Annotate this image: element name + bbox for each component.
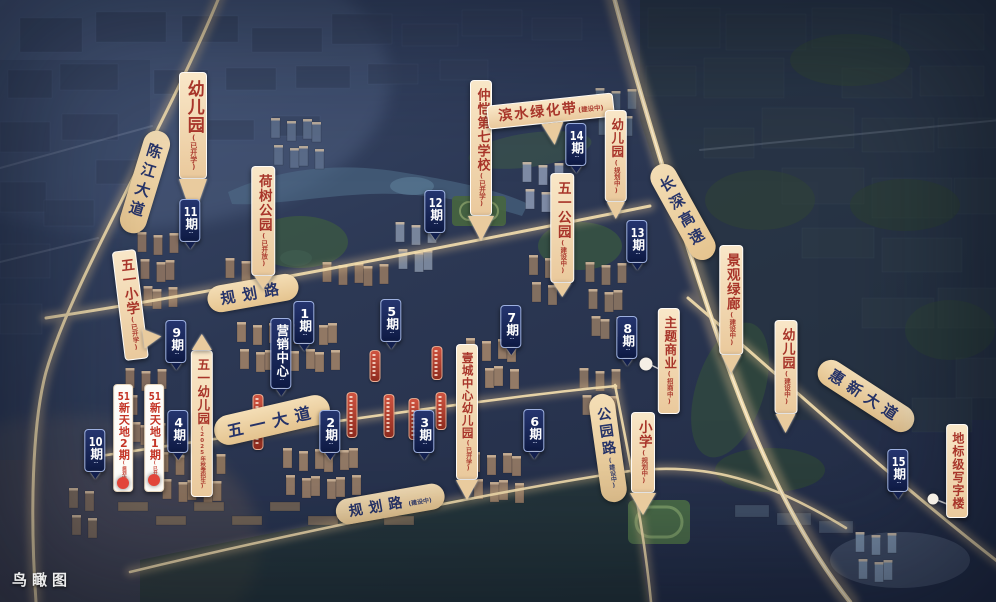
phase-8-label: 8期	[620, 322, 635, 348]
phase-1-pointer	[299, 344, 309, 351]
heshu-park: 荷树公园(已开放)	[251, 166, 275, 289]
primary-school-se-label: 小学	[636, 420, 652, 449]
dot-51-xintiandi-1	[148, 474, 160, 486]
sales-center: 营销中心⋯	[270, 318, 291, 396]
wuyi-kindergarten-label: 五一幼儿园	[195, 358, 210, 426]
yicheng-center-kindergarten-pointer	[456, 480, 478, 500]
phase-15: 15期⋯	[887, 449, 908, 499]
phase-2-status: ⋯	[328, 442, 333, 447]
phase-6-status: ⋯	[532, 441, 537, 446]
heshu-park-status: (已开放)	[260, 232, 268, 268]
masterplan-aerial-map: 幼儿园(已开学)荷树公园(已开放)仲恺第七学校(已开学)滨水绿化带(建设中)幼儿…	[0, 0, 1000, 602]
phase-2: 2期⋯	[319, 410, 340, 460]
landscape-corridor: 景观绿廊(建设中)	[719, 245, 743, 373]
phase-4: 4期⋯	[167, 410, 188, 460]
phase-12-pointer	[430, 233, 440, 240]
primary-school-se-status: (规划中)	[640, 449, 648, 485]
phase-9: 9期⋯	[165, 320, 186, 370]
wuyi-primary-school-status: (已开学)	[128, 315, 140, 351]
wuyi-park: 五一公园(建设中)	[550, 173, 574, 297]
wuyi-kindergarten: 五一幼儿园(2025年秋季招生)	[191, 334, 213, 497]
primary-school-se-pointer	[630, 493, 656, 515]
waterfront-greenbelt-label: 滨水绿化带	[498, 100, 579, 124]
road-guihua-south-status: (建设中)	[408, 497, 432, 508]
phase-9-label: 9期	[169, 326, 184, 352]
phase-10-status: ⋯	[93, 461, 98, 466]
kindergarten-n-pointer	[607, 202, 625, 219]
phase-13: 13期⋯	[626, 220, 647, 270]
zhongkai-no7-school-status: (已开学)	[477, 172, 485, 208]
kindergarten-n-status: (规划中)	[612, 159, 620, 195]
yicheng-center-kindergarten-status: (已开学)	[465, 440, 472, 472]
waterfront-greenbelt-pointer	[541, 122, 565, 146]
phase-7-status: ⋯	[509, 337, 514, 342]
phase-4-label: 4期	[171, 416, 186, 442]
phase-3: 3期⋯	[413, 410, 434, 460]
phase-10: 10期⋯	[84, 429, 105, 479]
kindergarten-e: 幼儿园(建设中)	[775, 320, 798, 433]
zhongkai-no7-school-pointer	[468, 216, 494, 241]
phase-12-label: 12期	[428, 196, 443, 222]
theme-commerce-label: 主题商业	[662, 316, 677, 370]
theme-commerce-status: (招商中)	[665, 370, 673, 406]
phase-2-pointer	[325, 453, 335, 460]
phase-5-status: ⋯	[389, 331, 394, 336]
wuyi-park-pointer	[553, 283, 571, 297]
yicheng-center-kindergarten: 壹城中心幼儿园(已开学)	[456, 344, 478, 500]
phase-13-status: ⋯	[635, 252, 640, 257]
heshu-park-label: 荷树公园	[256, 174, 272, 232]
wuyi-primary-school-label: 五一小学	[117, 257, 140, 317]
phase-14: 14期⋯	[565, 123, 586, 173]
phase-7: 7期⋯	[500, 305, 521, 355]
street-banner	[384, 394, 395, 438]
zhongkai-no7-school: 仲恺第七学校(已开学)	[468, 80, 494, 241]
phase-8-pointer	[622, 359, 632, 366]
phase-8-status: ⋯	[625, 348, 630, 353]
view-title: 鸟瞰图	[12, 569, 72, 590]
phase-15-status: ⋯	[896, 481, 901, 486]
phase-3-label: 3期	[417, 416, 432, 442]
phase-10-label: 10期	[88, 435, 103, 461]
phase-4-status: ⋯	[176, 442, 181, 447]
phase-12-status: ⋯	[433, 222, 438, 227]
street-banner	[347, 392, 358, 438]
phase-5-label: 5期	[384, 305, 399, 331]
heshu-park-pointer	[254, 276, 272, 289]
landscape-corridor-status: (建设中)	[728, 311, 736, 347]
phase-4-pointer	[173, 453, 183, 460]
phase-14-pointer	[571, 166, 581, 173]
phase-3-status: ⋯	[422, 442, 427, 447]
kindergarten-nw: 幼儿园(已开学)	[179, 72, 207, 219]
phase-9-status: ⋯	[174, 352, 179, 357]
phase-1: 1期⋯	[293, 301, 314, 351]
map-base-art	[0, 0, 1000, 602]
dot-landmark-office	[928, 494, 939, 505]
landmark-office-tower: 地标级写字楼	[946, 424, 968, 518]
wuyi-primary-school-pointer	[142, 326, 162, 348]
phase-3-pointer	[419, 453, 429, 460]
phase-11-pointer	[185, 242, 195, 249]
right-edge-strip	[996, 0, 1000, 602]
phase-7-pointer	[506, 348, 516, 355]
waterfront-greenbelt-status: (建设中)	[578, 104, 604, 115]
dot-51-xintiandi-2	[117, 477, 129, 489]
sales-center-pointer	[276, 389, 286, 396]
phase-14-label: 14期	[569, 129, 584, 155]
street-banner	[436, 392, 447, 430]
phase-13-pointer	[632, 263, 642, 270]
zhongkai-no7-school-label: 仲恺第七学校	[474, 88, 489, 172]
kindergarten-nw-status: (已开学)	[190, 134, 198, 171]
phase-14-status: ⋯	[574, 155, 579, 160]
kindergarten-e-status: (建设中)	[782, 370, 790, 406]
primary-school-se: 小学(规划中)	[630, 412, 656, 515]
phase-5: 5期⋯	[380, 299, 401, 349]
project-51-xintiandi-2-label: 51新天地2期	[117, 391, 130, 461]
yicheng-center-kindergarten-label: 壹城中心幼儿园	[461, 352, 475, 440]
project-51-xintiandi-2: 51新天地2期(规划中)	[113, 384, 133, 492]
phase-11-label: 11期	[183, 205, 198, 231]
phase-7-label: 7期	[504, 311, 519, 337]
kindergarten-n-label: 幼儿园	[609, 118, 624, 159]
wuyi-kindergarten-status: (2025年秋季招生)	[199, 426, 205, 490]
sales-center-label: 营销中心	[274, 324, 289, 378]
kindergarten-nw-label: 幼儿园	[184, 80, 204, 134]
phase-6-label: 6期	[527, 415, 542, 441]
phase-2-label: 2期	[323, 416, 338, 442]
phase-6: 6期⋯	[523, 409, 544, 459]
road-gongyuan-label: 公园路	[594, 406, 617, 459]
landscape-corridor-label: 景观绿廊	[724, 253, 740, 311]
phase-15-pointer	[893, 492, 903, 499]
phase-12: 12期⋯	[424, 190, 445, 240]
phase-15-label: 15期	[891, 455, 906, 481]
landmark-office-tower-label: 地标级写字楼	[951, 432, 965, 510]
kindergarten-e-pointer	[776, 414, 796, 433]
phase-6-pointer	[529, 452, 539, 459]
phase-8: 8期⋯	[616, 316, 637, 366]
dot-theme-commerce	[640, 358, 653, 371]
theme-commerce: 主题商业(招商中)	[658, 308, 680, 414]
wuyi-park-label: 五一公园	[555, 181, 571, 239]
project-51-xintiandi-1-label: 51新天地1期	[148, 391, 161, 461]
kindergarten-n: 幼儿园(规划中)	[605, 110, 627, 219]
phase-1-status: ⋯	[302, 333, 307, 338]
phase-13-label: 13期	[630, 226, 645, 252]
phase-1-label: 1期	[297, 307, 312, 333]
phase-5-pointer	[386, 342, 396, 349]
street-banner	[370, 350, 381, 382]
wuyi-park-status: (建设中)	[559, 239, 567, 275]
sales-center-status: ⋯	[279, 378, 284, 383]
street-banner	[432, 346, 443, 380]
phase-11: 11期⋯	[179, 199, 200, 249]
road-gongyuan-status: (建设中)	[606, 457, 617, 490]
phase-11-status: ⋯	[188, 231, 193, 236]
kindergarten-e-label: 幼儿园	[779, 328, 794, 370]
phase-10-pointer	[90, 472, 100, 479]
landscape-corridor-pointer	[721, 355, 741, 373]
wuyi-kindergarten-pointer	[192, 334, 212, 350]
phase-9-pointer	[171, 363, 181, 370]
